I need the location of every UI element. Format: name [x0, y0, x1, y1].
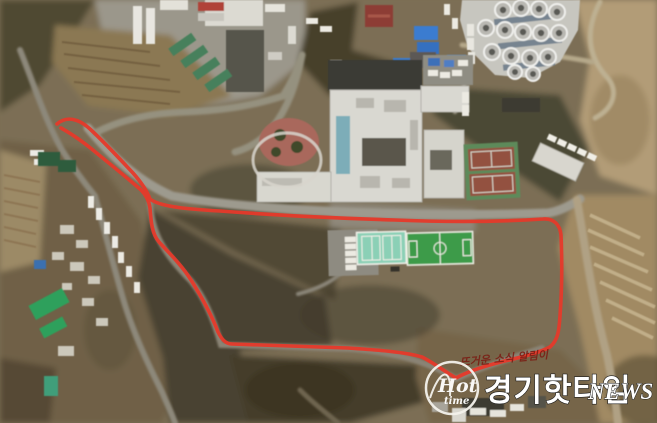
solar-strip [336, 116, 350, 174]
logo-script-hot: Hot [437, 375, 478, 397]
parked-cars-field [345, 237, 357, 271]
map-canvas: 뜨거운 소식 알림이 Hot time 경기핫타임 NEWS [0, 0, 657, 423]
watermark-brand-en: NEWS [587, 379, 653, 404]
playground [259, 118, 319, 166]
aerial-photo: 뜨거운 소식 알림이 Hot time 경기핫타임 NEWS [0, 0, 657, 423]
tennis-court [464, 142, 521, 201]
logo-script-time: time [444, 396, 469, 407]
